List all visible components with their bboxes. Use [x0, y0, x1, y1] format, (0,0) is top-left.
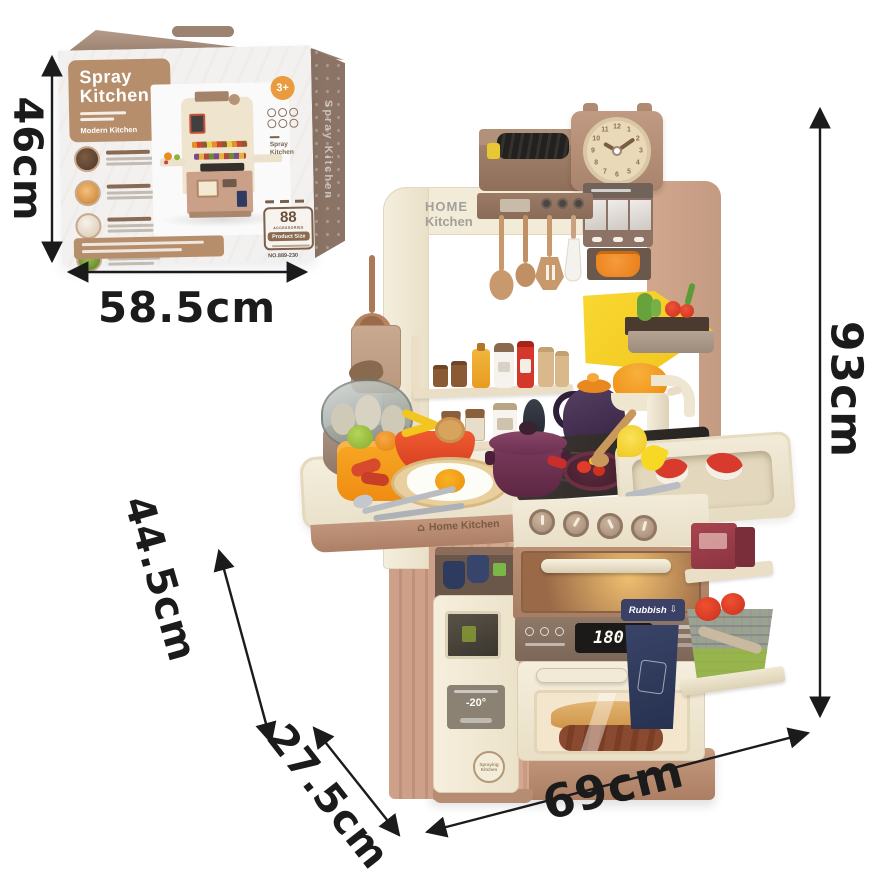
stove-knob-1 — [529, 509, 555, 535]
dim-arrow-toy-depth — [219, 551, 271, 742]
orange-fruit — [375, 431, 397, 451]
art-shelf-row-2 — [194, 153, 246, 160]
cookie-tan — [435, 417, 465, 443]
spatula-slot-2 — [552, 265, 555, 280]
stove-knob-2 — [563, 511, 589, 537]
purple-pot-lid-knob — [519, 421, 537, 435]
spice-jar-label — [497, 418, 513, 430]
clock-number: 1 — [627, 127, 631, 134]
art-oven-display — [223, 179, 237, 187]
steam-button-1 — [541, 198, 552, 209]
art-trash-bin — [237, 191, 247, 207]
feature-text-3b — [108, 229, 154, 233]
panel-dial-icon-3 — [555, 627, 564, 636]
tomato-1 — [665, 301, 681, 317]
tan-bottle-1 — [538, 347, 554, 387]
dispenser-buttons — [583, 232, 653, 247]
feature-text-1 — [106, 157, 158, 161]
mini-icon-2 — [278, 108, 287, 117]
box-subtitle-bar-2 — [80, 118, 114, 122]
art-oven-window — [197, 179, 219, 197]
clock-hub — [612, 146, 622, 156]
spatula-handle — [547, 215, 552, 257]
dispenser-btn-1 — [592, 237, 602, 242]
bin-sketch-icon — [637, 659, 667, 694]
art-shelf-row-1 — [192, 141, 248, 148]
steam-button-3 — [573, 198, 584, 209]
red-product-box-2 — [735, 527, 755, 567]
spoon-2-head — [516, 263, 536, 287]
dispenser-btn-2 — [613, 237, 623, 242]
box-handle — [172, 26, 234, 37]
hanging-utensils — [471, 215, 591, 325]
mini-label-dash — [270, 136, 280, 138]
panel-dial-labels — [525, 643, 565, 646]
box-subtitle-bar-1 — [80, 111, 126, 115]
panel-dial-icon-1 — [525, 627, 534, 636]
oil-bottle-cap — [477, 343, 485, 351]
tan-bottle-2 — [555, 351, 569, 387]
dispenser-header — [583, 183, 653, 198]
feature-text-2b — [107, 196, 153, 200]
trash-bin-navy — [623, 625, 681, 729]
fridge-window-item — [462, 626, 476, 642]
mini-icon-4 — [267, 119, 276, 128]
clock-number: 4 — [636, 160, 640, 167]
kettle-knob — [587, 373, 599, 382]
clock-number: 10 — [592, 136, 600, 143]
clock-number: 6 — [615, 172, 619, 179]
mini-label-line1: Spray — [270, 141, 288, 148]
clock-number: 5 — [627, 168, 631, 175]
panel-dial-icon-2 — [540, 627, 549, 636]
stove-knob-4 — [631, 515, 657, 541]
brand-line-1: HOME — [425, 199, 468, 214]
feature-icon-kettle — [74, 180, 101, 207]
age-badge: 3+ — [270, 76, 294, 100]
steam-button-2 — [557, 198, 568, 209]
stove-knob-3 — [597, 513, 623, 539]
dispenser-cell-3 — [630, 200, 651, 230]
oven-lower-handle — [536, 668, 628, 683]
mini-icon-5 — [278, 119, 287, 128]
clock-number: 3 — [639, 148, 643, 155]
art-left-wing — [160, 158, 186, 167]
utensil-bar-sticker — [500, 199, 530, 212]
spoon-1-head — [490, 270, 514, 300]
navy-cup-1 — [443, 561, 465, 589]
rubbish-arrow-icon: ⇩ — [670, 605, 678, 615]
ladle-handle — [369, 255, 375, 313]
dim-label-box-width: 58.5cm — [87, 283, 287, 332]
feature-title-3 — [107, 217, 151, 222]
spoon-1-handle — [499, 215, 504, 271]
oven-upper-handle — [541, 559, 671, 573]
dispenser-cell-2 — [608, 200, 629, 230]
fridge-display-topline — [454, 690, 498, 693]
utensils-svg — [471, 215, 591, 320]
clock-number: 11 — [601, 127, 608, 134]
cactus-veggie-small — [651, 299, 661, 317]
knife-blade — [565, 239, 581, 281]
feature-title-1 — [106, 150, 150, 155]
side-panel-corrugated — [389, 541, 439, 799]
box-title-line2: Kitchen — [80, 85, 150, 107]
fridge-window — [445, 611, 501, 659]
knife-handle — [571, 215, 576, 239]
dim-label-toy-depth: 44.5cm — [110, 477, 209, 682]
feature-text-3 — [107, 224, 159, 228]
art-left-items — [164, 152, 172, 160]
dim-label-toy-height: 93cm — [821, 290, 872, 490]
oven-display-temp: 180 — [593, 628, 624, 648]
product-image-canvas: Spray Kitchen Spray Kitchen Modern Kitch… — [0, 0, 880, 880]
dispenser-header-text — [591, 189, 631, 192]
smallprint-line-1 — [82, 241, 204, 247]
dispenser-btn-3 — [634, 237, 644, 242]
spoon-2-handle — [523, 215, 528, 263]
feature-text-4b — [108, 262, 154, 266]
dispenser-cells — [583, 198, 653, 232]
sponge-yellow — [487, 143, 500, 159]
feature-icon-spray — [74, 146, 101, 173]
clock-number: 12 — [613, 124, 621, 131]
jar-brown-1 — [433, 365, 448, 387]
clock-number: 7 — [603, 168, 607, 175]
smallprint-line-2 — [82, 248, 182, 253]
navy-cup-2 — [467, 555, 489, 583]
fridge-display-temp: -20° — [447, 697, 505, 709]
clock-number: 2 — [636, 136, 640, 143]
model-number: NO.889-230 — [268, 253, 298, 260]
clock-number: 8 — [594, 160, 598, 167]
box-subtitle: Modern Kitchen — [80, 125, 137, 135]
ketchup-bottle — [517, 341, 534, 388]
basket-tomato-1 — [695, 597, 721, 621]
house-icon: ⌂ — [417, 521, 426, 534]
dispenser — [583, 183, 653, 247]
dim-label-box-height: 46cm — [4, 59, 50, 259]
tomato-2 — [680, 304, 694, 318]
wooden-spoon-head — [591, 453, 609, 467]
jar-brown-2 — [451, 361, 467, 387]
spatula-head — [535, 257, 564, 290]
spatula-slot-1 — [546, 265, 549, 280]
mini-label-line2: Kitchen — [270, 149, 294, 156]
fridge-logo-line2: Kitchen — [475, 767, 503, 772]
basket-tomato-2 — [721, 593, 745, 615]
oven-control-panel: 180 ℃ — [515, 617, 707, 661]
art-top-shelf — [195, 91, 229, 102]
red-product-box — [691, 523, 737, 569]
orange-pot — [596, 251, 640, 277]
feature-title-2 — [107, 184, 151, 189]
fridge-logo-circle: Spraying Kitchen — [473, 751, 505, 783]
box-front-face: Spray Kitchen Modern Kitchen — [58, 45, 315, 265]
feature-text-1b — [106, 162, 152, 166]
red-box-label — [699, 533, 727, 549]
purple-pot-handle-left — [485, 451, 495, 465]
playset: HOME Kitchen 121234567891011 — [295, 95, 795, 815]
faucet-tip — [684, 403, 695, 417]
rubbish-label: Rubbish — [629, 605, 667, 616]
box-smallprint-strip — [74, 235, 224, 259]
salt-label — [498, 362, 510, 372]
feature-icon-fridge — [75, 213, 102, 240]
salt-shaker — [494, 343, 514, 388]
clock-number: 9 — [591, 148, 595, 155]
brand-line-2: Kitchen — [425, 214, 473, 229]
lime-fruit — [347, 425, 373, 449]
fridge-display: -20° — [447, 685, 505, 729]
rubbish-sign: Rubbish ⇩ — [621, 599, 685, 621]
ketchup-label — [520, 359, 531, 373]
mini-icon-1 — [267, 108, 276, 117]
towel — [497, 133, 569, 159]
feature-text-2 — [107, 191, 159, 195]
fridge-display-btn — [460, 718, 492, 723]
veggie-bin — [628, 331, 714, 353]
clock-face: 121234567891011 — [583, 117, 651, 185]
teabag-green — [493, 563, 506, 576]
art-blackboard — [189, 114, 205, 134]
oil-bottle — [472, 349, 490, 388]
